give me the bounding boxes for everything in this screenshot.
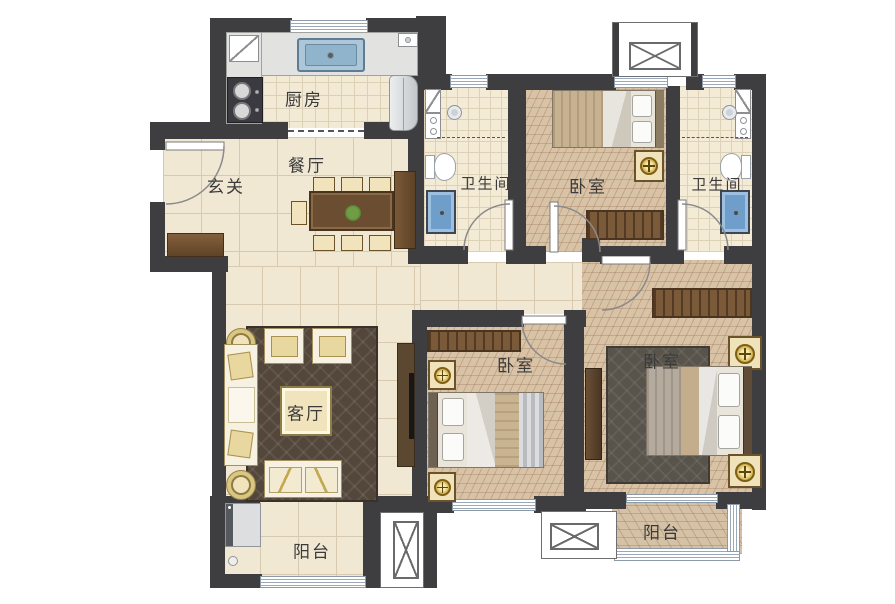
balcony-right-window-bottom <box>614 548 740 561</box>
vanity-sink-icon <box>430 128 437 135</box>
wall-segment <box>150 202 165 260</box>
stove-knob <box>255 90 259 94</box>
wall-segment <box>752 80 766 510</box>
bedroom-right-nightstand <box>728 336 762 370</box>
bath1-corner-shelf <box>425 89 441 113</box>
ac-platform-bottom-middle <box>541 511 617 559</box>
bed-pillow <box>442 398 464 426</box>
bathroom1-label: 卫生间 <box>460 173 511 194</box>
wall-segment <box>412 310 524 327</box>
bath1-floor-drain <box>447 105 462 120</box>
bath2-corner-shelf <box>735 89 751 113</box>
burner-icon <box>233 82 251 100</box>
lamp-icon <box>434 479 451 496</box>
bed-sheet-fold <box>699 367 717 455</box>
bed-blanket <box>553 91 603 147</box>
loveseat-cushion <box>305 467 338 493</box>
shower-drain-icon <box>733 210 739 216</box>
balcony-right-window-side <box>727 504 740 552</box>
bath1-shower <box>426 190 456 234</box>
fridge-door-line <box>403 78 404 130</box>
bathroom2-window <box>702 75 736 88</box>
bed-runner <box>519 393 543 467</box>
bedroom-right-nightstand <box>728 454 762 488</box>
wall-segment <box>363 496 381 588</box>
lamp-icon <box>640 157 658 175</box>
faucet-icon <box>327 52 334 59</box>
bed-headboard <box>655 91 664 147</box>
armchair <box>264 328 304 364</box>
ac-platform-bottom-left <box>380 512 424 588</box>
wall-segment <box>210 574 262 588</box>
bed-sheet <box>467 393 495 467</box>
bedroom-top-bed <box>552 90 664 148</box>
dining-chair <box>313 235 335 251</box>
bed-pillow <box>632 95 652 117</box>
bath1-partition <box>437 137 505 138</box>
bed-runner <box>681 367 699 455</box>
platform-post <box>613 23 619 76</box>
balcony-right-label: 阳台 <box>643 519 681 544</box>
kitchen-threshold <box>288 130 364 132</box>
bedroom-middle-nightstand <box>428 472 456 502</box>
fridge <box>389 75 418 131</box>
bedroom-middle-label: 卧室 <box>497 352 535 377</box>
wall-segment <box>734 74 766 90</box>
wall-segment <box>226 122 288 139</box>
platform-post <box>691 23 697 76</box>
bedroom-right-bed <box>646 366 752 456</box>
plant-icon <box>345 205 361 221</box>
balcony-left-label: 阳台 <box>293 538 331 563</box>
bedroom-top-label: 卧室 <box>569 173 607 198</box>
hallway-floor <box>420 262 588 314</box>
bedroom-right-label: 卧室 <box>643 348 681 373</box>
bath1-toilet <box>425 151 457 183</box>
stove-knob <box>255 108 259 112</box>
bed-pillow <box>442 433 464 461</box>
lamp-icon <box>735 344 755 364</box>
foyer-shoe-cabinet <box>167 233 224 257</box>
kitchen-label: 厨房 <box>285 86 323 111</box>
bath2-floor-drain <box>722 105 737 120</box>
wall-segment <box>424 512 437 588</box>
wall-segment <box>210 18 226 128</box>
washing-machine <box>225 503 261 547</box>
sofa-cushion <box>227 430 253 459</box>
dining-table <box>309 191 394 231</box>
floor-drain <box>228 556 238 566</box>
armchair-cushion <box>271 336 298 357</box>
bedroom-middle-bed <box>428 392 544 468</box>
side-table-round <box>226 470 256 500</box>
foyer-label: 玄关 <box>207 173 245 198</box>
dining-chair <box>341 235 363 251</box>
burner-icon <box>233 102 251 120</box>
living-label: 客厅 <box>287 400 325 425</box>
bed-blanket <box>495 393 519 467</box>
balcony-left-window <box>260 576 366 588</box>
bathroom1-door <box>458 196 514 252</box>
lamp-icon <box>735 462 755 482</box>
wall-segment <box>514 74 616 90</box>
washer-dot <box>228 506 231 509</box>
ac-unit-box <box>550 523 599 550</box>
armchair-cushion <box>319 336 346 357</box>
wall-segment <box>582 492 626 509</box>
bed-pillow <box>632 121 652 143</box>
stove <box>227 77 263 123</box>
dining-chair <box>291 201 307 225</box>
bedroom-right-door <box>596 256 654 316</box>
vanity-sink-icon <box>430 117 437 124</box>
sofa-long <box>224 344 258 466</box>
vent-box <box>398 33 418 47</box>
bedroom-middle-nightstand <box>428 360 456 390</box>
shower-drain-icon <box>439 210 445 216</box>
bedroom-middle-wardrobe <box>427 330 521 352</box>
floorplan: 厨房 餐厅 玄关 卫生间 卧室 卫生间 客厅 卧室 卧室 阳台 阳台 <box>0 0 895 604</box>
loveseat-cushion <box>269 467 302 493</box>
loveseat <box>264 460 342 498</box>
washer-panel <box>226 504 233 546</box>
dining-sideboard <box>394 171 416 249</box>
bath1-vanity <box>425 113 441 139</box>
tv-cabinet <box>397 343 415 467</box>
bedroom-right-cabinet <box>585 368 602 460</box>
bedroom-top-door <box>548 198 606 256</box>
bedroom-top-nightstand <box>634 150 664 182</box>
ac-unit-box <box>393 521 419 579</box>
bed-sheet-fold <box>603 91 631 147</box>
vanity-sink-icon <box>740 117 747 124</box>
bed-headboard <box>429 393 438 467</box>
bathroom1-window <box>450 75 488 88</box>
tv-icon <box>409 373 414 439</box>
dining-chair <box>369 235 391 251</box>
bed-headboard <box>743 367 752 455</box>
lamp-icon <box>434 367 451 384</box>
ac-platform-top <box>612 22 698 77</box>
balcony-right-sliding-door <box>626 494 718 503</box>
kitchen-sink <box>297 38 365 72</box>
wall-segment <box>416 16 446 78</box>
bathroom2-label: 卫生间 <box>691 174 742 195</box>
bath2-vanity <box>735 113 751 139</box>
bedroom-middle-window <box>452 499 536 511</box>
ac-unit-box <box>629 42 681 70</box>
bed-pillow <box>718 415 740 449</box>
bed-blanket <box>647 367 681 455</box>
bedroom-right-dresser <box>652 288 752 318</box>
sofa-cushion <box>227 352 253 381</box>
armchair <box>312 328 352 364</box>
dining-label: 餐厅 <box>288 152 326 177</box>
sofa-seat-line <box>228 387 255 423</box>
bath2-partition <box>682 137 748 138</box>
toilet-bowl <box>434 153 456 181</box>
vent-hole <box>405 37 411 43</box>
bathroom2-door <box>676 196 732 252</box>
bed-pillow <box>718 373 740 407</box>
corner-cabinet <box>229 35 259 62</box>
vanity-sink-icon <box>740 128 747 135</box>
